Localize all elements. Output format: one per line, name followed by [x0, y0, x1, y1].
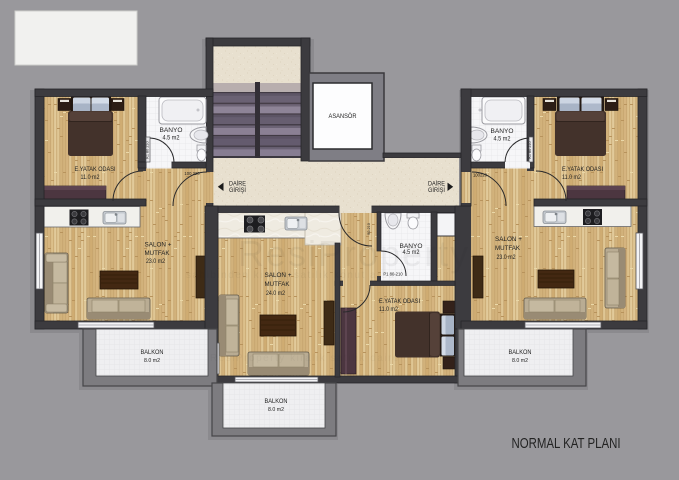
svg-text:100220: 100220 — [473, 173, 488, 178]
svg-text:K1 80 210: K1 80 210 — [528, 141, 532, 158]
svg-text:23.0 m2: 23.0 m2 — [497, 255, 517, 261]
svg-text:11.0 m2: 11.0 m2 — [379, 307, 399, 313]
svg-text:MUTFAK: MUTFAK — [265, 281, 291, 288]
svg-text:100 220: 100 220 — [184, 171, 200, 176]
svg-text:BANYO: BANYO — [160, 127, 183, 134]
svg-text:SALON +: SALON + — [145, 242, 172, 249]
svg-text:E.YATAK ODASI: E.YATAK ODASI — [562, 166, 603, 173]
svg-text:ASANSÖR: ASANSÖR — [329, 112, 357, 120]
svg-text:ResiProperty kiralik satilik d: ResiProperty kiralik satilik daire — [210, 353, 400, 364]
svg-text:SALON +: SALON + — [495, 236, 522, 243]
svg-text:NORMAL KAT PLANI: NORMAL KAT PLANI — [512, 436, 621, 452]
svg-text:8.0 m2: 8.0 m2 — [268, 407, 284, 413]
svg-text:BANYO: BANYO — [491, 128, 514, 135]
svg-text:8.0 m2: 8.0 m2 — [512, 358, 528, 364]
svg-text:4.5 m2: 4.5 m2 — [163, 136, 181, 142]
svg-text:BALKON: BALKON — [509, 349, 532, 356]
svg-text:23.0 m2: 23.0 m2 — [146, 259, 166, 265]
svg-text:24.0 m2: 24.0 m2 — [266, 291, 286, 297]
svg-text:ResiProperty: ResiProperty — [238, 233, 470, 274]
svg-text:MUTFAK: MUTFAK — [495, 245, 521, 252]
svg-text:4.5 m2: 4.5 m2 — [494, 137, 512, 143]
svg-text:K1 80 210: K1 80 210 — [146, 141, 150, 158]
svg-text:8.0 m2: 8.0 m2 — [144, 358, 160, 364]
svg-text:11.0 m2: 11.0 m2 — [81, 175, 101, 181]
svg-text:11.0 m2: 11.0 m2 — [562, 175, 582, 181]
svg-text:MUTFAK: MUTFAK — [145, 250, 171, 257]
svg-text:E.YATAK ODASI: E.YATAK ODASI — [75, 166, 116, 173]
svg-text:BALKON: BALKON — [141, 349, 164, 356]
svg-text:GİRİŞİ: GİRİŞİ — [229, 187, 246, 194]
svg-text:E.YATAK ODASI: E.YATAK ODASI — [379, 298, 420, 305]
svg-text:BALKON: BALKON — [265, 398, 288, 405]
svg-text:sahibinden kiralik satilik kon: sahibinden kiralik satilik konut arsa — [186, 270, 395, 281]
svg-text:GİRİŞİ: GİRİŞİ — [428, 187, 445, 194]
